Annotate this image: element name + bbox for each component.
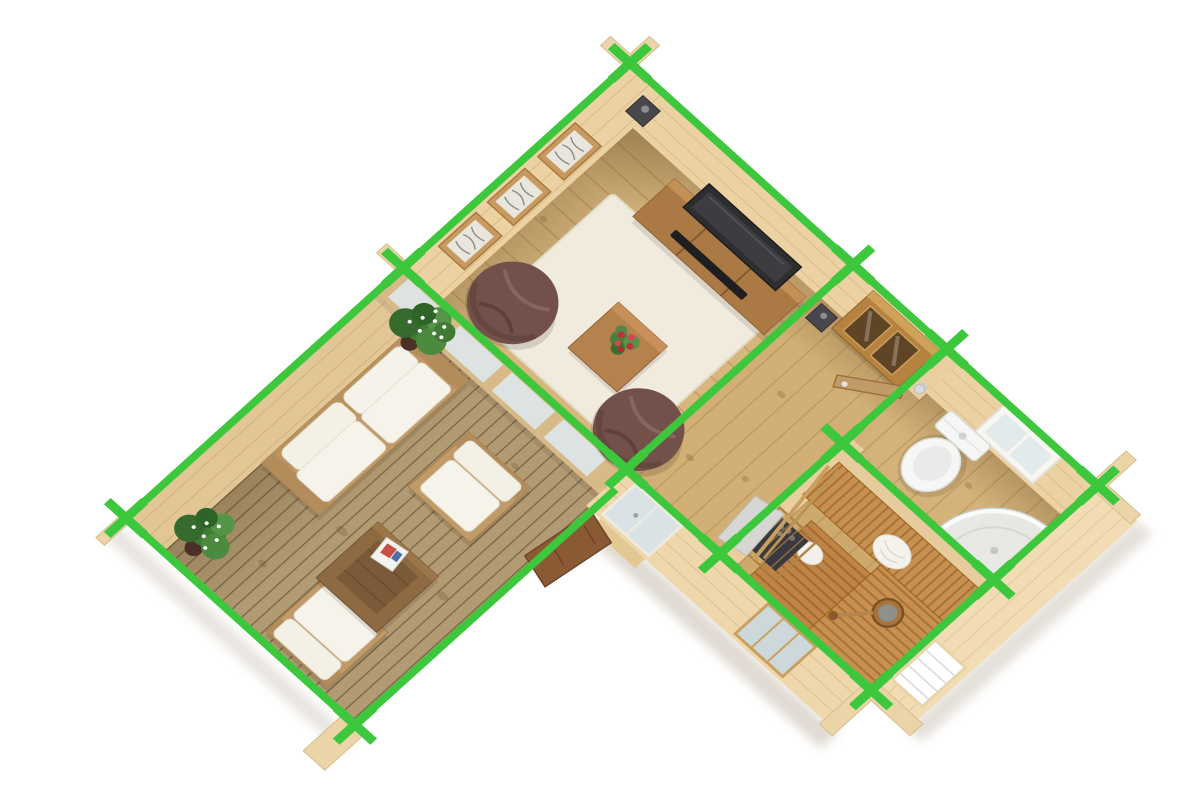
building-group (61, 11, 1185, 800)
render-canvas (0, 0, 1200, 800)
cabin-floorplan-3d-render (0, 0, 1200, 800)
